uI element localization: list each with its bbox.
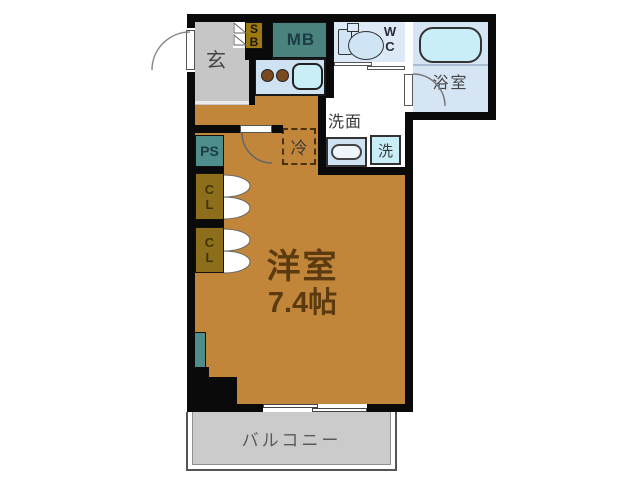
wall: [318, 167, 405, 175]
wc-label: W C: [380, 24, 400, 54]
balcony-window-leaf: [263, 404, 318, 408]
front-door-leaf: [186, 30, 195, 70]
wall-bottom-left: [187, 404, 263, 412]
refrigerator-label: 冷: [291, 134, 308, 159]
wall: [249, 56, 255, 105]
balcony-label: バルコニー: [242, 426, 342, 451]
wall-right-upper: [488, 14, 496, 120]
floor-plan: 玄 S B MB W C 洗面 洗 冷 浴室 PS C L: [0, 0, 640, 480]
wall-top: [187, 14, 496, 22]
balcony-floor: バルコニー: [192, 412, 391, 465]
bathroom-divider-line: [413, 64, 488, 66]
meter-box-label: MB: [287, 30, 315, 50]
entrance-label: 玄: [206, 44, 236, 73]
western-room-name: 洋室: [215, 248, 390, 286]
closet-upper-label: C L: [205, 182, 214, 212]
shoe-box: S B: [245, 22, 263, 49]
pipe-shaft: [194, 332, 206, 368]
wall-right-main: [405, 112, 413, 412]
wall-bottom-right: [367, 404, 413, 412]
wall: [263, 22, 272, 52]
wall: [195, 220, 224, 227]
toilet-flush-icon: [347, 23, 359, 32]
shoe-box-label: S B: [250, 23, 259, 49]
pipe-space: PS: [195, 135, 224, 167]
kitchen-sink-icon: [292, 63, 323, 90]
closet-upper: C L: [195, 173, 224, 220]
wall: [272, 125, 283, 133]
room-door-leaf: [240, 125, 272, 133]
stove-burner-icon: [261, 69, 274, 82]
wall: [326, 22, 334, 98]
bath-door-leaf: [404, 74, 413, 106]
bathroom-label: 浴室: [432, 69, 468, 93]
western-room-size: 7.4帖: [215, 286, 390, 320]
wall-left: [187, 14, 195, 412]
closet-lower-label: C L: [205, 235, 214, 265]
western-room-label-block: 洋室 7.4帖: [215, 248, 390, 320]
toilet-bowl-icon: [348, 31, 384, 60]
refrigerator-space: 冷: [282, 128, 316, 165]
front-door-arc-icon: [152, 32, 190, 70]
washing-machine: 洗: [370, 135, 401, 165]
entrance-step-line: [195, 101, 252, 104]
bathroom-label-wrap: 浴室: [413, 70, 488, 92]
washing-machine-label: 洗: [378, 140, 393, 161]
washroom-label: 洗面: [328, 108, 362, 132]
vanity-basin-icon: [331, 144, 362, 160]
pipe-space-label: PS: [200, 143, 219, 159]
meter-box: MB: [272, 22, 330, 58]
bathtub-icon: [419, 27, 482, 63]
stove-burner-icon: [276, 69, 289, 82]
wall: [318, 96, 326, 175]
wall-bath-bottom: [405, 112, 496, 120]
